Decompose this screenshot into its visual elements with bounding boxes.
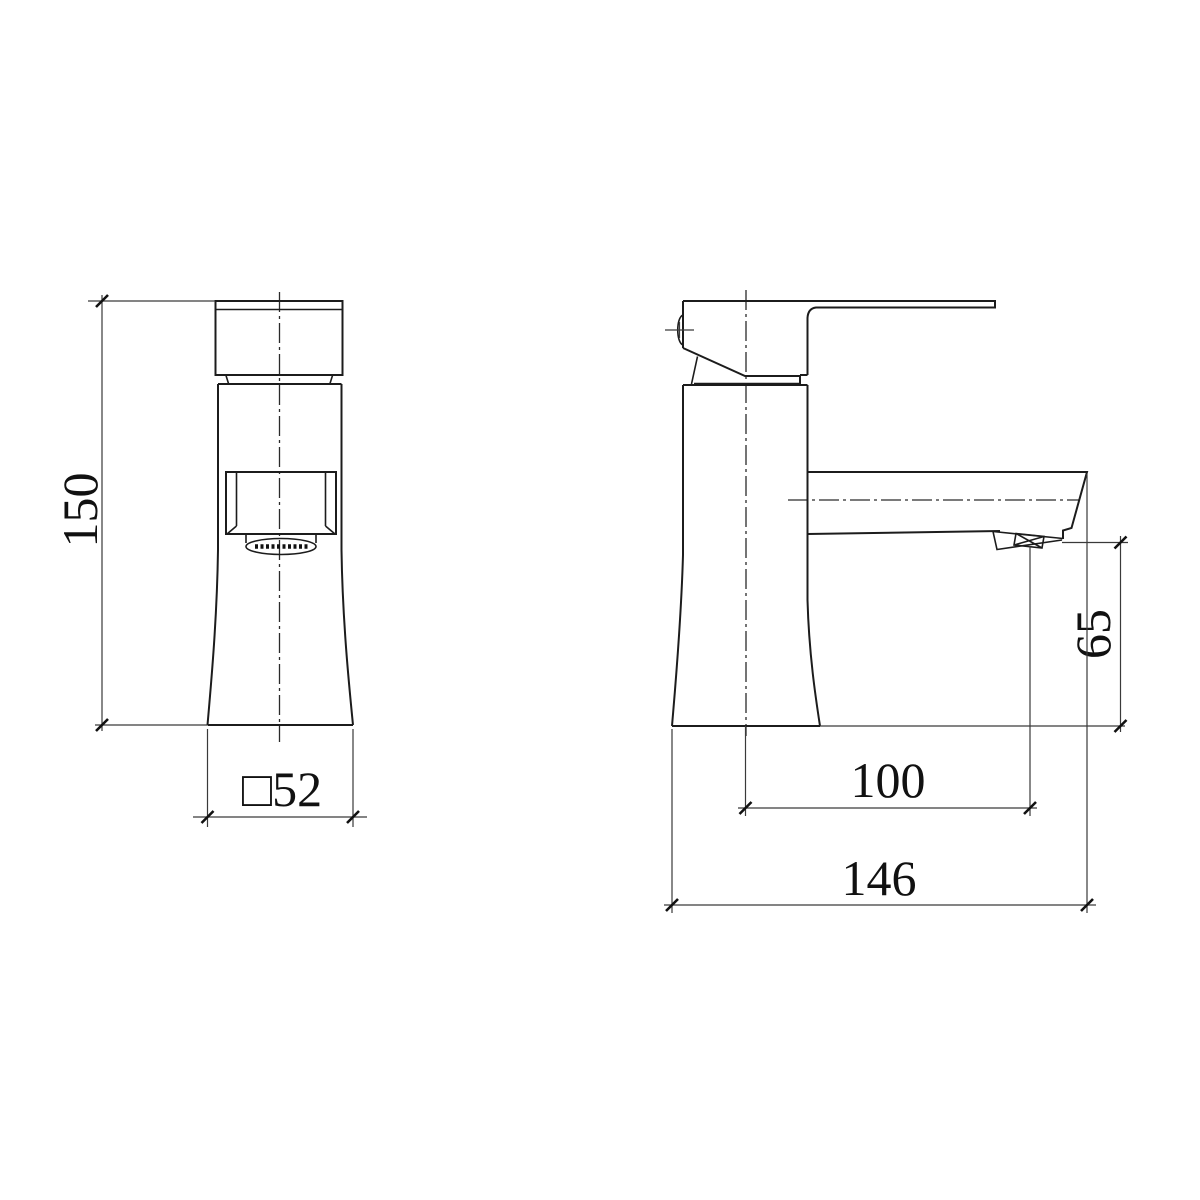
dimension-side-outlet-height: 65 — [1062, 536, 1128, 732]
technical-drawing: 150 □52 — [0, 0, 1200, 1200]
front-spout-block — [226, 472, 336, 534]
side-view: 65 100 146 — [664, 290, 1128, 913]
front-view: 150 □52 — [52, 292, 367, 827]
dimension-front-height: 150 — [52, 295, 215, 731]
side-handle-skirt-inner — [692, 357, 698, 385]
dimension-side-spout-reach: 100 — [738, 546, 1037, 816]
dim-label-side-spout-reach: 100 — [851, 752, 926, 808]
side-handle-lever — [683, 301, 995, 375]
dim-label-front-height: 150 — [52, 473, 108, 548]
drawing-canvas: 150 □52 — [0, 0, 1200, 1200]
side-handle-skirt — [683, 348, 808, 384]
dim-label-side-overall-depth: 146 — [842, 850, 917, 906]
side-aerator-insert — [1014, 534, 1044, 549]
front-spout-chamfers — [227, 472, 335, 534]
side-handle-center-mark — [665, 322, 694, 338]
side-spout — [808, 472, 1088, 539]
dim-label-front-base: □52 — [242, 761, 322, 817]
dimension-front-base: □52 — [193, 729, 367, 827]
dim-label-side-outlet-height: 65 — [1065, 609, 1121, 659]
